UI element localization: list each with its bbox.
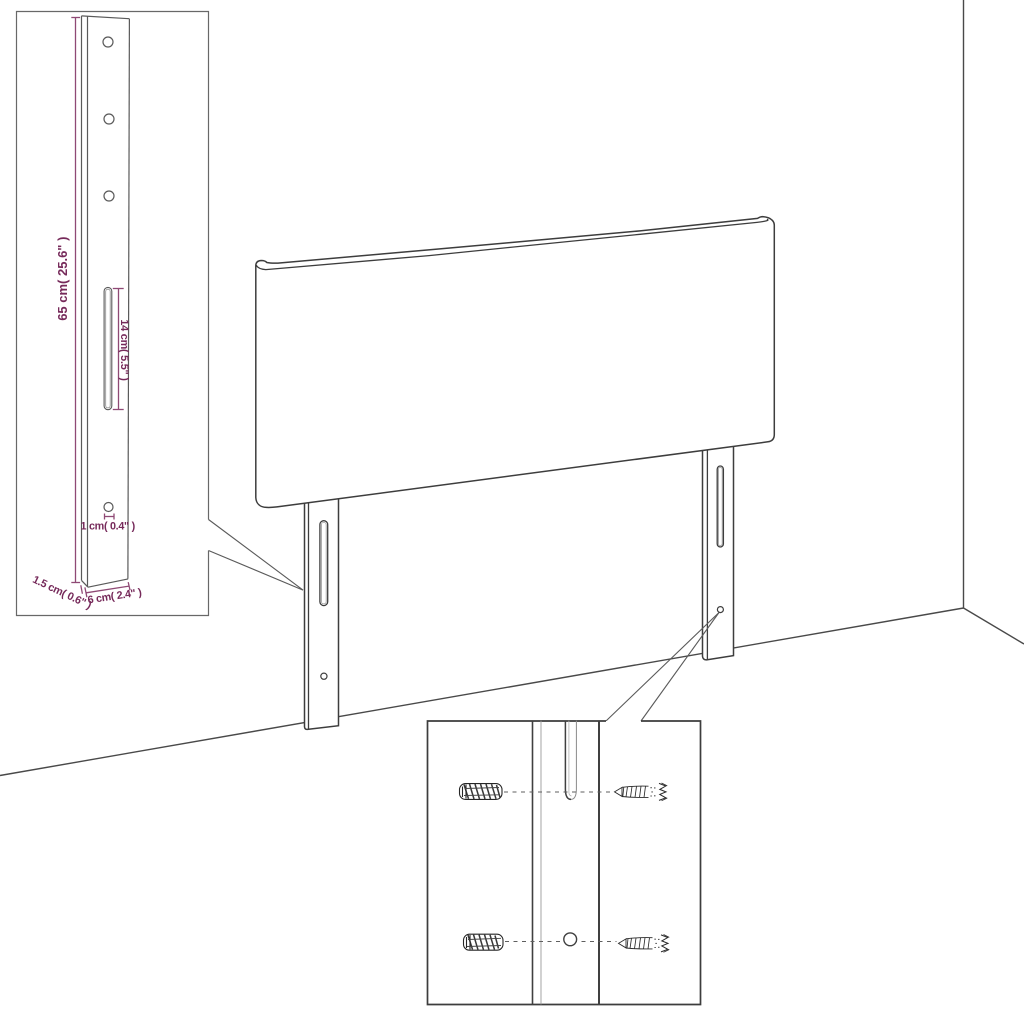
svg-text:1 cm( 0.4" ): 1 cm( 0.4" ) (81, 521, 136, 533)
svg-text:65 cm( 25.6" ): 65 cm( 25.6" ) (55, 237, 70, 321)
svg-text:14 cm( 5.5" ): 14 cm( 5.5" ) (118, 319, 130, 381)
